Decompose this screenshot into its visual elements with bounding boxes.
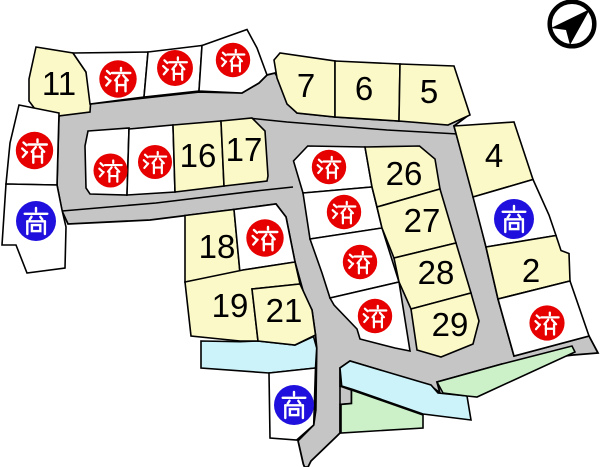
svg-text:27: 27	[404, 202, 441, 239]
svg-text:21: 21	[266, 292, 303, 329]
svg-text:5: 5	[420, 73, 438, 110]
svg-text:18: 18	[199, 228, 236, 265]
svg-text:17: 17	[226, 131, 263, 168]
svg-text:6: 6	[355, 70, 373, 107]
svg-text:16: 16	[180, 137, 217, 174]
svg-text:7: 7	[297, 67, 315, 104]
svg-text:19: 19	[212, 287, 249, 324]
svg-text:29: 29	[432, 306, 469, 343]
svg-text:11: 11	[42, 65, 76, 102]
svg-text:2: 2	[522, 252, 540, 289]
svg-text:28: 28	[418, 254, 455, 291]
svg-text:26: 26	[386, 155, 423, 192]
svg-text:4: 4	[485, 137, 503, 174]
